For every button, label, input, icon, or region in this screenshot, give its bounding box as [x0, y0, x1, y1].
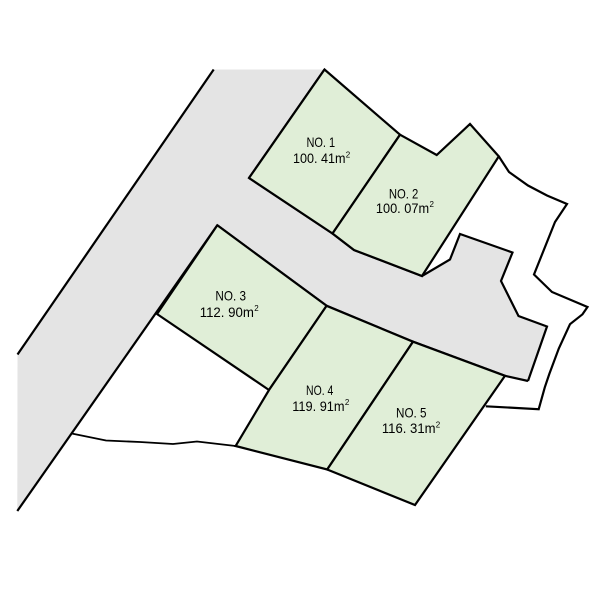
svg-text:112. 90m: 112. 90m	[200, 304, 254, 320]
svg-text:2: 2	[436, 420, 441, 429]
svg-text:2: 2	[346, 151, 351, 160]
svg-text:2: 2	[430, 200, 435, 209]
svg-text:NO. 3: NO. 3	[215, 288, 246, 304]
svg-text:NO. 5: NO. 5	[396, 404, 427, 420]
svg-text:2: 2	[345, 398, 350, 407]
svg-text:NO. 4: NO. 4	[306, 382, 333, 398]
svg-text:2: 2	[254, 304, 259, 313]
svg-text:116. 31m: 116. 31m	[382, 420, 436, 436]
svg-text:100. 41m: 100. 41m	[293, 150, 346, 166]
svg-text:119. 91m: 119. 91m	[292, 398, 344, 414]
svg-text:NO. 1: NO. 1	[306, 134, 335, 150]
svg-text:NO. 2: NO. 2	[389, 185, 419, 201]
svg-text:100. 07m: 100. 07m	[376, 200, 429, 216]
